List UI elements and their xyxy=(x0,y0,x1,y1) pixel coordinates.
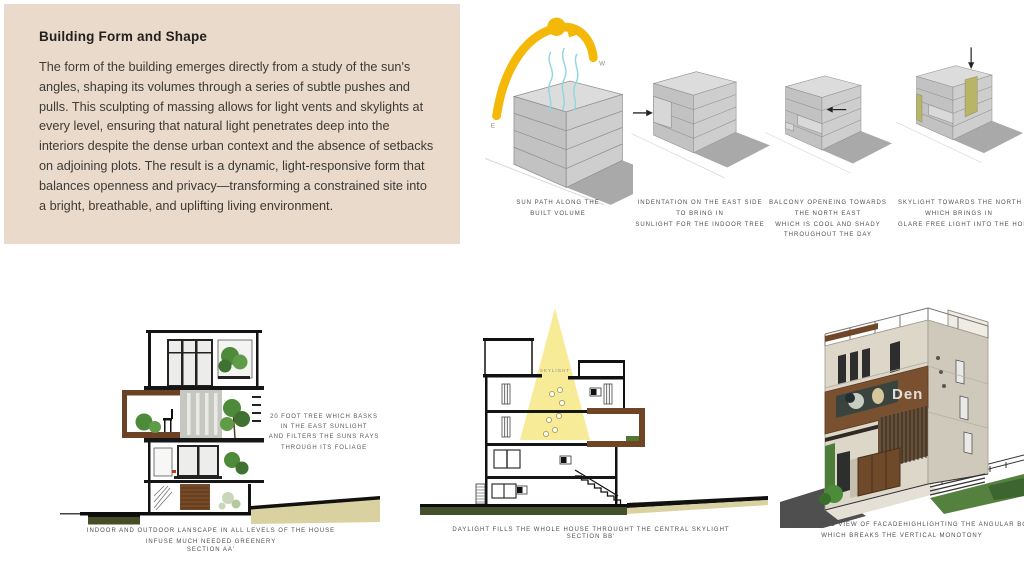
skylight-label: SKYLIGHT xyxy=(540,368,570,373)
section-aa-caption: INDOOR AND OUTDOOR LANSCAPE IN ALL LEVEL… xyxy=(42,526,380,548)
indentation-drawing xyxy=(630,48,770,183)
road-wedge xyxy=(251,496,380,524)
skylight-chute xyxy=(965,76,977,116)
axonometric-panel: Den AXONOMETRIC VIEW OF FACADEHIGHLIGHTI… xyxy=(780,288,1024,564)
stone-pillar xyxy=(850,458,858,498)
window-floor3 xyxy=(168,340,212,386)
sun-path-drawing: W E xyxy=(483,10,633,210)
stair xyxy=(575,470,621,504)
sun-path-diagram: W E SUN PATH ALONG THE BUILT VOLUME xyxy=(483,10,633,242)
arrow-down-icon xyxy=(968,47,974,69)
section-aa-panel: 20 FOOT TREE WHICH BASKS IN THE EAST SUN… xyxy=(60,300,380,576)
section-bb-drawing: SKYLIGHT xyxy=(412,300,770,530)
indentation-notch xyxy=(654,96,672,128)
red-marker xyxy=(172,470,176,473)
road-wedge xyxy=(627,496,768,514)
diagram-caption: BALCONY OPENEING TOWARDS THE NORTH EAST … xyxy=(768,198,888,241)
striped-core-wall xyxy=(180,390,222,438)
balcony-diagram: BALCONY OPENEING TOWARDS THE NORTH EAST … xyxy=(768,10,888,242)
indentation-diagram: INDENTATION ON THE EAST SIDE TO BRING IN… xyxy=(630,10,770,242)
window-floor1 xyxy=(174,446,222,479)
diagram-caption: SUN PATH ALONG THE BUILT VOLUME xyxy=(483,198,633,220)
louver-fins xyxy=(252,396,261,422)
double-window xyxy=(492,450,520,498)
section-bb-panel: SKYLIGHT xyxy=(412,300,770,576)
tree-floor2 xyxy=(220,399,250,438)
section-bb-label: SECTION BB' xyxy=(412,534,770,540)
axonometric-caption: AXONOMETRIC VIEW OF FACADEHIGHLIGHTING T… xyxy=(780,520,1024,542)
side-facade xyxy=(928,320,988,484)
page-title: Building Form and Shape xyxy=(39,29,430,44)
skylight-drawing xyxy=(895,28,1023,180)
skylight-diagram: SKYLIGHT TOWARDS THE NORTH WHICH BRINGS … xyxy=(898,10,1020,242)
green-wall xyxy=(825,443,835,492)
stair-hatch xyxy=(154,486,172,510)
intro-paragraph: The form of the building emerges directl… xyxy=(39,58,437,217)
green-ground xyxy=(420,507,627,515)
courtyard-plants xyxy=(219,492,241,510)
diagram-caption: SKYLIGHT TOWARDS THE NORTH WHICH BRINGS … xyxy=(898,198,1020,230)
balcony-drawing xyxy=(764,54,892,178)
roof-slab xyxy=(146,330,262,333)
ground-line xyxy=(80,512,260,516)
diagram-caption: INDENTATION ON THE EAST SIDE TO BRING IN… xyxy=(630,198,770,230)
louver-door xyxy=(180,484,210,510)
hatch-panel xyxy=(476,484,485,504)
section-aa-label: SECTION AA' xyxy=(42,547,380,553)
balcony-box xyxy=(122,390,180,438)
ground-line xyxy=(420,504,627,507)
tree-annotation: 20 FOOT TREE WHICH BASKS IN THE EAST SUN… xyxy=(265,412,383,453)
east-label: E xyxy=(491,122,495,129)
intro-panel: Building Form and Shape The form of the … xyxy=(4,4,460,244)
west-label: W xyxy=(599,60,605,67)
balcony-box xyxy=(587,408,645,447)
arrow-right-icon xyxy=(633,110,653,117)
left-planter xyxy=(88,516,140,525)
axonometric-drawing xyxy=(780,288,1024,528)
plants-floor1 xyxy=(224,452,249,475)
skylight-strip xyxy=(917,94,922,122)
watermark: Den xyxy=(892,386,923,403)
